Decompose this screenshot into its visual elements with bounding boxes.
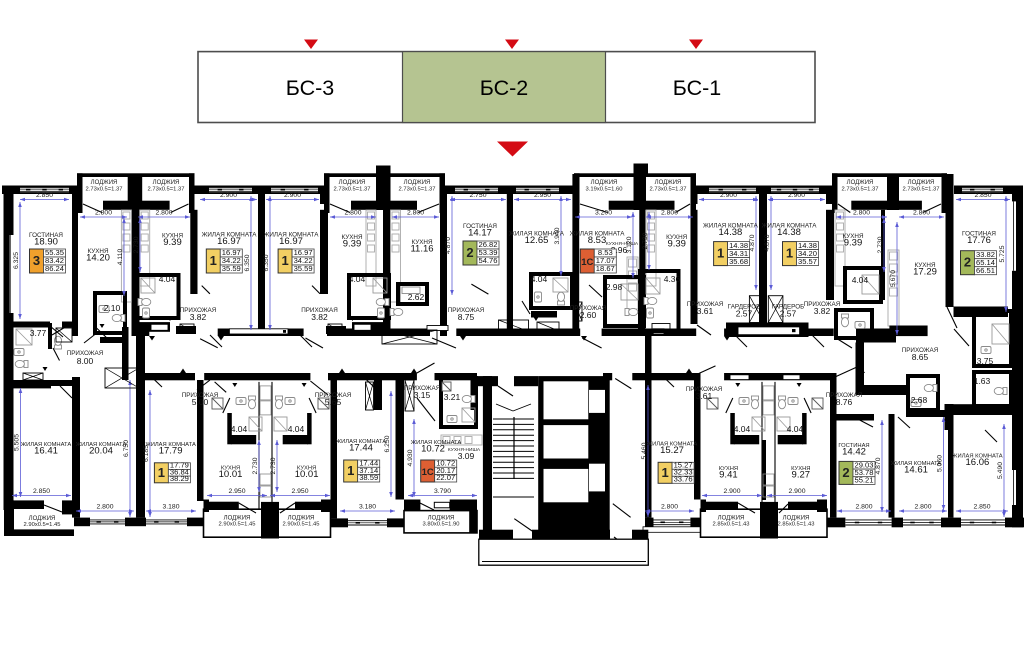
svg-text:14.20: 14.20 <box>86 253 110 264</box>
svg-text:66.51: 66.51 <box>976 266 995 275</box>
svg-text:12.65: 12.65 <box>525 235 549 246</box>
svg-text:4.110: 4.110 <box>117 249 124 266</box>
svg-text:5.670: 5.670 <box>890 270 897 287</box>
svg-text:2.800: 2.800 <box>661 210 678 217</box>
svg-text:3.09: 3.09 <box>458 451 475 461</box>
svg-text:4.04: 4.04 <box>787 424 804 434</box>
svg-text:17.29: 17.29 <box>913 267 937 278</box>
svg-text:2.730: 2.730 <box>270 457 277 474</box>
svg-text:2.85х0.5=1.43: 2.85х0.5=1.43 <box>713 522 750 528</box>
svg-text:17.44: 17.44 <box>349 443 373 454</box>
svg-text:2.90х0.5=1.45: 2.90х0.5=1.45 <box>219 522 256 528</box>
svg-text:2.73х0.5=1.37: 2.73х0.5=1.37 <box>650 187 687 193</box>
svg-text:16.97: 16.97 <box>279 236 303 247</box>
svg-text:8.53: 8.53 <box>588 235 607 246</box>
svg-text:3.82: 3.82 <box>814 306 831 316</box>
svg-text:3.790: 3.790 <box>434 488 451 495</box>
svg-text:2.730: 2.730 <box>252 457 259 474</box>
svg-text:2.950: 2.950 <box>534 192 551 199</box>
svg-text:5.490: 5.490 <box>997 462 1004 479</box>
svg-text:9.39: 9.39 <box>343 239 362 250</box>
svg-text:3.61: 3.61 <box>697 306 714 316</box>
svg-text:6.350: 6.350 <box>263 254 270 271</box>
svg-text:18.90: 18.90 <box>34 237 58 248</box>
svg-text:2.85х0.5=1.43: 2.85х0.5=1.43 <box>778 522 815 528</box>
svg-text:ЛОДЖИЯ: ЛОДЖИЯ <box>153 180 180 186</box>
svg-text:3.21: 3.21 <box>444 392 461 402</box>
svg-text:2.750: 2.750 <box>469 192 486 199</box>
svg-text:3.61: 3.61 <box>696 391 713 401</box>
svg-text:9.39: 9.39 <box>667 239 686 250</box>
svg-text:2.950: 2.950 <box>228 488 245 495</box>
svg-text:14.61: 14.61 <box>904 465 928 476</box>
svg-text:14.38: 14.38 <box>719 227 743 238</box>
svg-text:1: 1 <box>347 463 354 478</box>
svg-text:4.04: 4.04 <box>852 275 869 285</box>
svg-text:2.850: 2.850 <box>36 192 53 199</box>
svg-text:86.24: 86.24 <box>45 264 64 273</box>
svg-text:3.75: 3.75 <box>977 356 994 366</box>
svg-text:2.800: 2.800 <box>407 210 424 217</box>
svg-text:35.57: 35.57 <box>798 257 817 266</box>
svg-text:5.65: 5.65 <box>325 397 342 407</box>
svg-text:ЛОДЖИЯ: ЛОДЖИЯ <box>91 180 118 186</box>
svg-text:2.800: 2.800 <box>96 504 113 511</box>
svg-text:1С: 1С <box>581 257 593 268</box>
svg-text:1: 1 <box>281 253 288 268</box>
svg-text:18.67: 18.67 <box>596 264 615 273</box>
svg-text:1.63: 1.63 <box>974 376 991 386</box>
svg-text:2.73х0.5=1.37: 2.73х0.5=1.37 <box>842 187 879 193</box>
svg-text:ЛОДЖИЯ: ЛОДЖИЯ <box>847 180 874 186</box>
svg-text:3.80х0.5=1.90: 3.80х0.5=1.90 <box>423 522 460 528</box>
svg-text:22.07: 22.07 <box>436 473 455 482</box>
svg-text:3.82: 3.82 <box>190 312 207 322</box>
svg-text:2.730: 2.730 <box>133 236 140 253</box>
svg-text:2.68: 2.68 <box>911 395 928 405</box>
svg-text:3.19х0.5=1.60: 3.19х0.5=1.60 <box>586 187 623 193</box>
svg-text:14.42: 14.42 <box>842 447 866 458</box>
svg-text:ЛОДЖИЯ: ЛОДЖИЯ <box>591 180 618 186</box>
svg-text:14.38: 14.38 <box>777 227 801 238</box>
svg-text:54.76: 54.76 <box>478 256 497 265</box>
svg-text:16.97: 16.97 <box>217 236 241 247</box>
svg-text:2.900: 2.900 <box>284 192 301 199</box>
svg-text:3.82: 3.82 <box>311 312 328 322</box>
svg-text:2.800: 2.800 <box>855 504 872 511</box>
svg-text:2.10: 2.10 <box>104 303 121 313</box>
svg-text:2.900: 2.900 <box>723 488 740 495</box>
svg-text:17.79: 17.79 <box>159 446 183 457</box>
svg-text:4.04: 4.04 <box>734 424 751 434</box>
svg-text:2.73х0.5=1.37: 2.73х0.5=1.37 <box>86 187 123 193</box>
svg-text:4.04: 4.04 <box>159 274 176 284</box>
svg-text:2.57: 2.57 <box>736 309 753 319</box>
svg-text:2.57: 2.57 <box>780 309 797 319</box>
svg-text:55.21: 55.21 <box>854 476 873 485</box>
svg-text:3: 3 <box>33 253 40 268</box>
svg-text:35.68: 35.68 <box>729 257 748 266</box>
svg-text:10.01: 10.01 <box>219 469 243 480</box>
svg-text:4.870: 4.870 <box>764 234 771 251</box>
svg-text:35.59: 35.59 <box>294 264 313 273</box>
svg-text:2.730: 2.730 <box>642 232 649 249</box>
svg-text:2.730: 2.730 <box>877 236 884 253</box>
svg-text:4.04: 4.04 <box>531 274 548 284</box>
svg-text:3.200: 3.200 <box>595 210 612 217</box>
svg-text:2.900: 2.900 <box>788 488 805 495</box>
svg-text:1: 1 <box>210 253 217 268</box>
svg-text:4.36: 4.36 <box>664 274 681 284</box>
svg-text:2.800: 2.800 <box>661 504 678 511</box>
svg-text:1: 1 <box>158 465 165 480</box>
svg-text:3.15: 3.15 <box>414 390 431 400</box>
svg-text:16.06: 16.06 <box>966 457 990 468</box>
svg-text:2.90х0.5=1.45: 2.90х0.5=1.45 <box>24 522 61 528</box>
svg-text:8.65: 8.65 <box>912 352 929 362</box>
svg-text:ЛОДЖИЯ: ЛОДЖИЯ <box>339 180 366 186</box>
svg-text:2.800: 2.800 <box>853 210 870 217</box>
svg-text:2.60: 2.60 <box>580 310 597 320</box>
svg-text:35.59: 35.59 <box>222 264 241 273</box>
svg-text:2.73х0.5=1.37: 2.73х0.5=1.37 <box>903 187 940 193</box>
svg-text:2.800: 2.800 <box>344 210 361 217</box>
svg-text:4.04: 4.04 <box>349 274 366 284</box>
svg-text:2.900: 2.900 <box>720 192 737 199</box>
svg-text:2.90х0.5=1.45: 2.90х0.5=1.45 <box>283 522 320 528</box>
svg-text:БС-1: БС-1 <box>673 76 722 100</box>
svg-text:2.73х0.5=1.37: 2.73х0.5=1.37 <box>148 187 185 193</box>
svg-text:2.900: 2.900 <box>788 192 805 199</box>
svg-text:2.950: 2.950 <box>291 488 308 495</box>
svg-text:4.870: 4.870 <box>445 237 452 254</box>
svg-text:14.17: 14.17 <box>468 228 492 239</box>
svg-text:5.00: 5.00 <box>192 397 209 407</box>
svg-text:9.39: 9.39 <box>163 237 182 248</box>
svg-text:1: 1 <box>661 465 668 480</box>
svg-text:9.27: 9.27 <box>792 470 811 481</box>
svg-text:2.850: 2.850 <box>973 504 990 511</box>
svg-text:ЛОДЖИЯ: ЛОДЖИЯ <box>655 180 682 186</box>
svg-text:2: 2 <box>466 245 473 260</box>
svg-text:2: 2 <box>964 255 971 270</box>
svg-text:2.800: 2.800 <box>913 210 930 217</box>
svg-text:2.850: 2.850 <box>974 192 991 199</box>
svg-text:1С: 1С <box>422 467 434 478</box>
svg-text:20.04: 20.04 <box>89 446 113 457</box>
svg-text:4.870: 4.870 <box>875 457 882 474</box>
svg-text:4.04: 4.04 <box>288 424 305 434</box>
svg-text:4.870: 4.870 <box>749 234 756 251</box>
svg-text:9.41: 9.41 <box>719 470 738 481</box>
svg-text:2: 2 <box>842 465 849 480</box>
svg-text:2.800: 2.800 <box>95 210 112 217</box>
svg-text:8.00: 8.00 <box>77 356 94 366</box>
svg-text:3.180: 3.180 <box>162 504 179 511</box>
svg-text:10.72: 10.72 <box>421 444 445 455</box>
svg-text:3.77: 3.77 <box>30 328 47 338</box>
svg-text:6.325: 6.325 <box>13 252 20 269</box>
svg-text:4.930: 4.930 <box>407 449 414 466</box>
svg-text:2.900: 2.900 <box>220 192 237 199</box>
svg-text:6.350: 6.350 <box>244 254 251 271</box>
svg-text:2.62: 2.62 <box>408 292 425 302</box>
svg-text:38.29: 38.29 <box>170 474 189 483</box>
svg-text:БС-2: БС-2 <box>480 76 529 100</box>
svg-text:2.98: 2.98 <box>606 282 623 292</box>
svg-text:8.76: 8.76 <box>836 397 853 407</box>
svg-text:11.16: 11.16 <box>410 244 433 255</box>
svg-text:16.41: 16.41 <box>34 446 58 457</box>
svg-text:4.04: 4.04 <box>231 424 248 434</box>
svg-text:8.75: 8.75 <box>458 312 475 322</box>
svg-text:3.180: 3.180 <box>359 504 376 511</box>
svg-text:10.01: 10.01 <box>295 469 319 480</box>
svg-text:ЛОДЖИЯ: ЛОДЖИЯ <box>404 180 431 186</box>
svg-text:2.73х0.5=1.37: 2.73х0.5=1.37 <box>399 187 436 193</box>
svg-text:2.800: 2.800 <box>914 504 931 511</box>
svg-text:17.76: 17.76 <box>967 235 991 246</box>
svg-text:1: 1 <box>786 246 793 261</box>
svg-text:ЛОДЖИЯ: ЛОДЖИЯ <box>908 180 935 186</box>
svg-text:2.850: 2.850 <box>33 488 50 495</box>
svg-text:38.59: 38.59 <box>359 473 378 482</box>
svg-text:2.800: 2.800 <box>155 210 172 217</box>
svg-text:2.73х0.5=1.37: 2.73х0.5=1.37 <box>334 187 371 193</box>
svg-text:БС-3: БС-3 <box>286 76 335 100</box>
svg-text:33.76: 33.76 <box>674 475 693 484</box>
svg-text:9.39: 9.39 <box>844 238 863 249</box>
svg-text:5.505: 5.505 <box>14 434 21 451</box>
svg-text:5.725: 5.725 <box>999 245 1006 262</box>
svg-text:15.27: 15.27 <box>660 445 684 456</box>
svg-text:1: 1 <box>717 246 724 261</box>
